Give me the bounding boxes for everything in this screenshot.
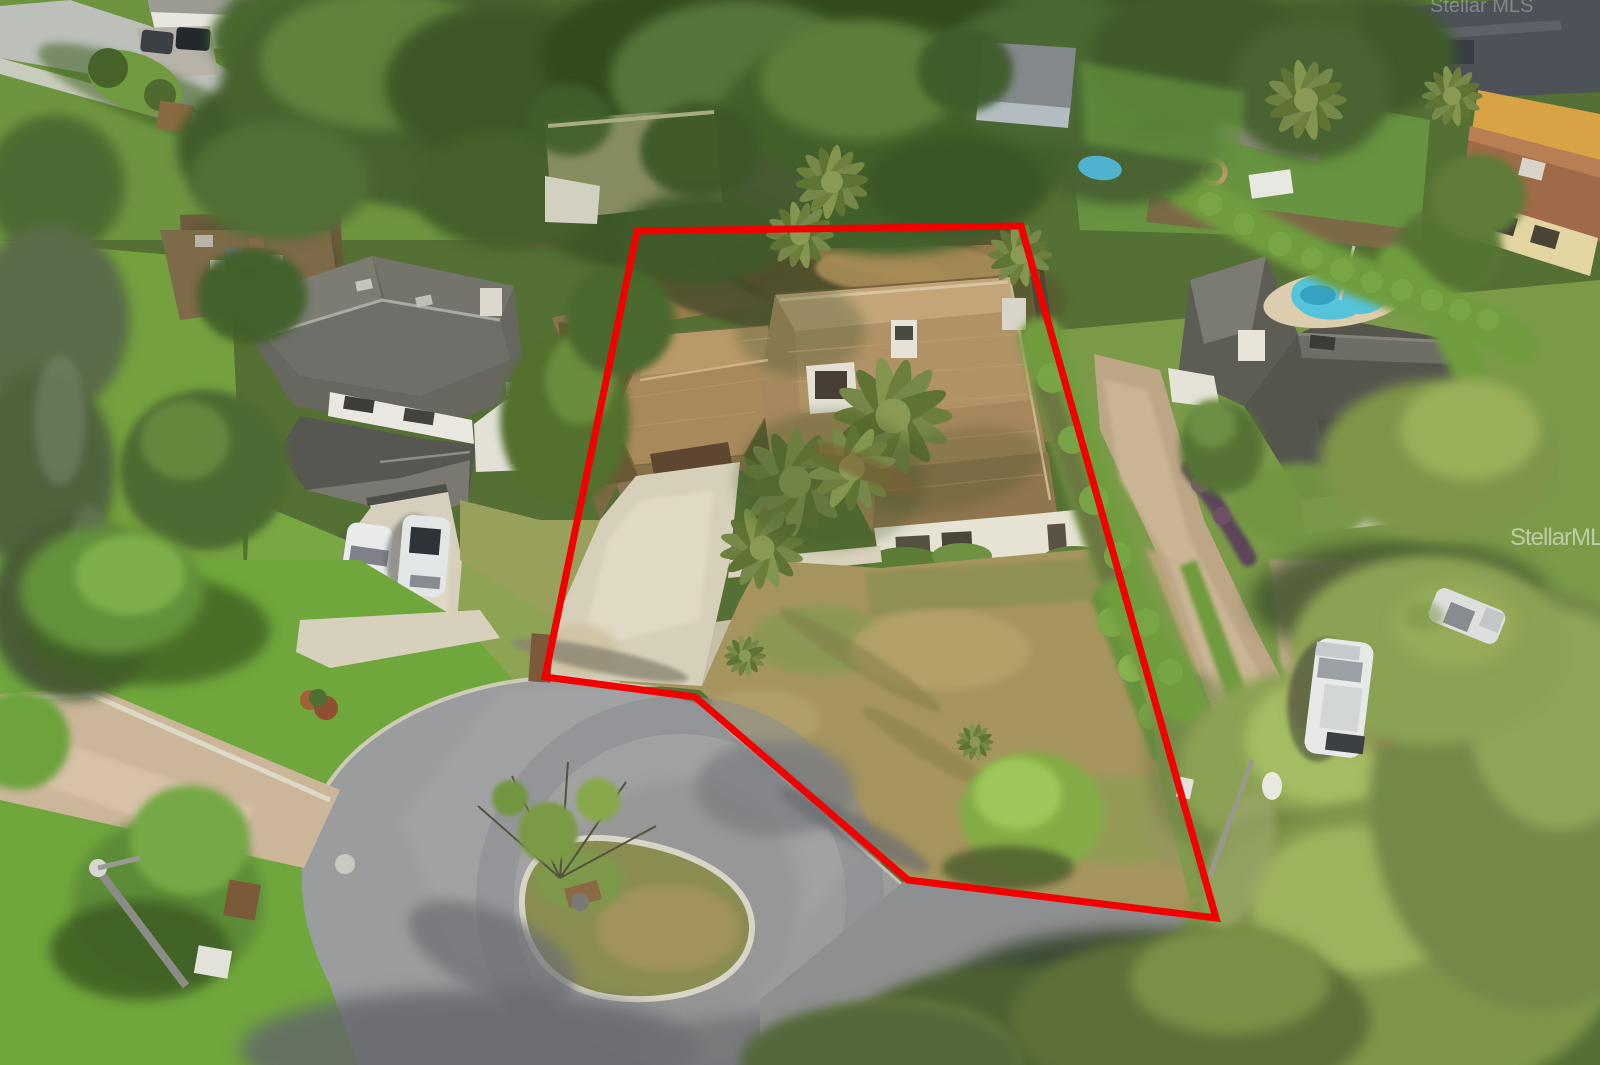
svg-text:StellarMLS: StellarMLS	[1510, 524, 1600, 551]
svg-text:Stellar MLS: Stellar MLS	[1430, 0, 1533, 17]
